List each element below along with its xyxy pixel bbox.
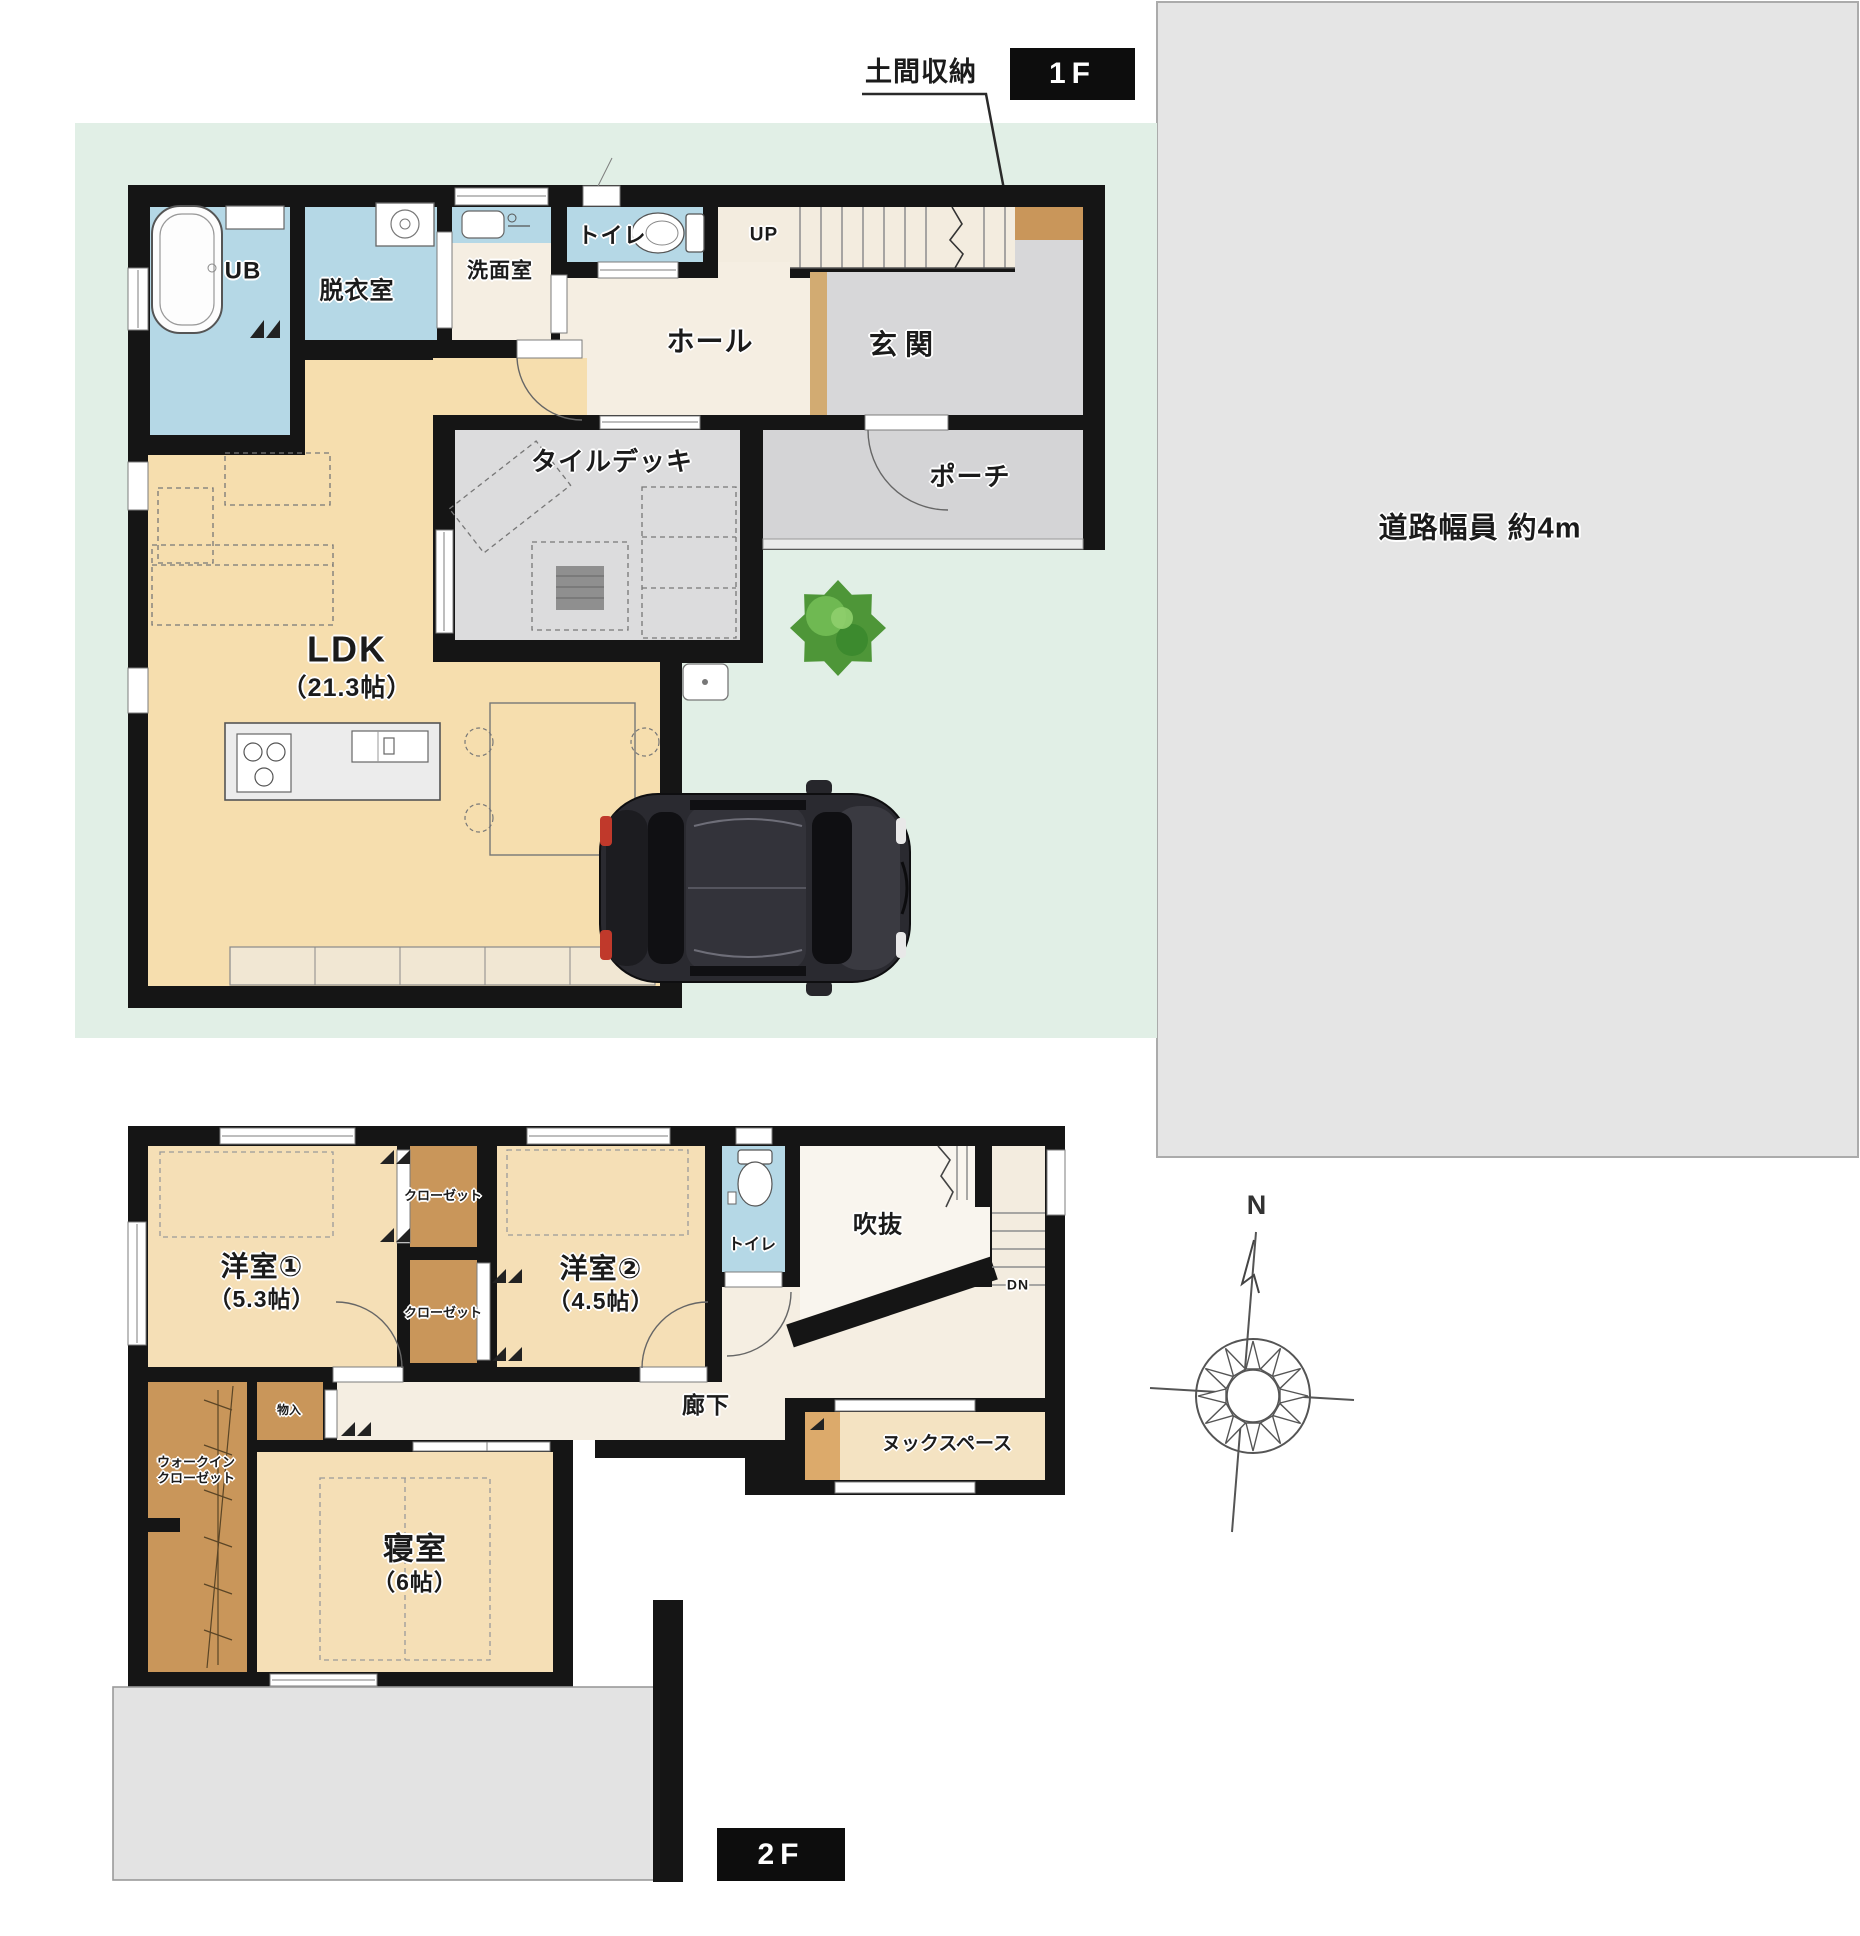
room-entrance (827, 272, 1083, 415)
north-arrow (1242, 1240, 1259, 1293)
floor2-label-box: 2F (717, 1828, 845, 1881)
room-label-wic: ウォークイン クローゼット (157, 1454, 235, 1485)
room-porch (763, 430, 1083, 540)
floor1-label: 1F (1049, 57, 1096, 91)
room-label-toilet-2f: トイレ (728, 1235, 776, 1254)
corridor-mid (722, 1287, 785, 1440)
floor1-label-box: 1F (1010, 48, 1135, 100)
room-label-void: 吹抜 (853, 1212, 903, 1241)
room-label-ub: UB (225, 258, 262, 287)
tree-illustration (790, 580, 886, 676)
compass-rose (1150, 1232, 1354, 1532)
room-label-bedroom2: 洋室② (560, 1252, 643, 1286)
room-label-up: UP (750, 225, 778, 248)
house-2f (128, 1126, 1065, 1687)
ac-unit (683, 664, 728, 700)
kitchen-island (225, 723, 440, 800)
wic-stub-wall (148, 1518, 180, 1532)
room-entrance-upper (1015, 240, 1083, 272)
hall-join (718, 262, 790, 282)
room-label-ldk-size: （21.3帖） (282, 673, 413, 703)
deck-table-top (556, 566, 604, 610)
doma-storage (1015, 207, 1083, 240)
floorplan-canvas: 1F 2F 土間収納 道路幅員 約4m UB 脱衣室 洗面室 トイレ ホール U… (0, 0, 1860, 1936)
room-label-closet-upper: クローゼット (404, 1188, 482, 1204)
room-label-master-bedroom-size: （6帖） (372, 1569, 458, 1597)
room-label-bedroom2-size: （4.5帖） (548, 1288, 655, 1316)
stairs-2f-floor (992, 1146, 1045, 1290)
entrance-divider (810, 272, 827, 415)
room-label-closet-lower: クローゼット (404, 1305, 482, 1321)
room-label-monoire: 物入 (277, 1403, 301, 1417)
floorplan-graphics (0, 0, 1860, 1936)
room-label-dn: DN (1007, 1277, 1029, 1294)
doma-storage-callout: 土間収納 (865, 56, 977, 88)
room-label-nook: ヌックスペース (882, 1434, 1012, 1457)
room-label-hall: ホール (666, 325, 753, 359)
road-area (1157, 2, 1858, 1157)
road-width-label: 道路幅員 約4m (1379, 512, 1582, 547)
car-illustration (600, 780, 910, 996)
room-label-porch: ポーチ (929, 461, 1010, 492)
room-ldk-c (433, 358, 587, 415)
floor2-label: 2F (757, 1838, 804, 1872)
room-label-toilet-1f: トイレ (577, 223, 646, 249)
room-label-master-bedroom: 寝室 (383, 1530, 447, 1567)
room-label-ldk: LDK (307, 627, 387, 670)
wic-label-line2: クローゼット (157, 1470, 235, 1486)
compass-north-label: N (1247, 1189, 1268, 1221)
room-label-bedroom1: 洋室① (221, 1250, 304, 1284)
room-label-bedroom1-size: （5.3帖） (209, 1286, 316, 1314)
washing-machine (376, 203, 434, 246)
ldk-lower-cabinets (230, 947, 655, 985)
room-label-hallway: 廊下 (682, 1392, 730, 1420)
porch-step (763, 539, 1083, 549)
room-label-washroom: 洗面室 (467, 258, 533, 283)
room-ldk-b (148, 455, 305, 986)
wic-label-line1: ウォークイン (157, 1454, 235, 1470)
room-label-tiledeck: タイルデッキ (531, 446, 693, 477)
corridor-left (337, 1382, 722, 1440)
room-label-dressing: 脱衣室 (320, 278, 395, 307)
room-label-entrance: 玄関 (869, 328, 941, 362)
